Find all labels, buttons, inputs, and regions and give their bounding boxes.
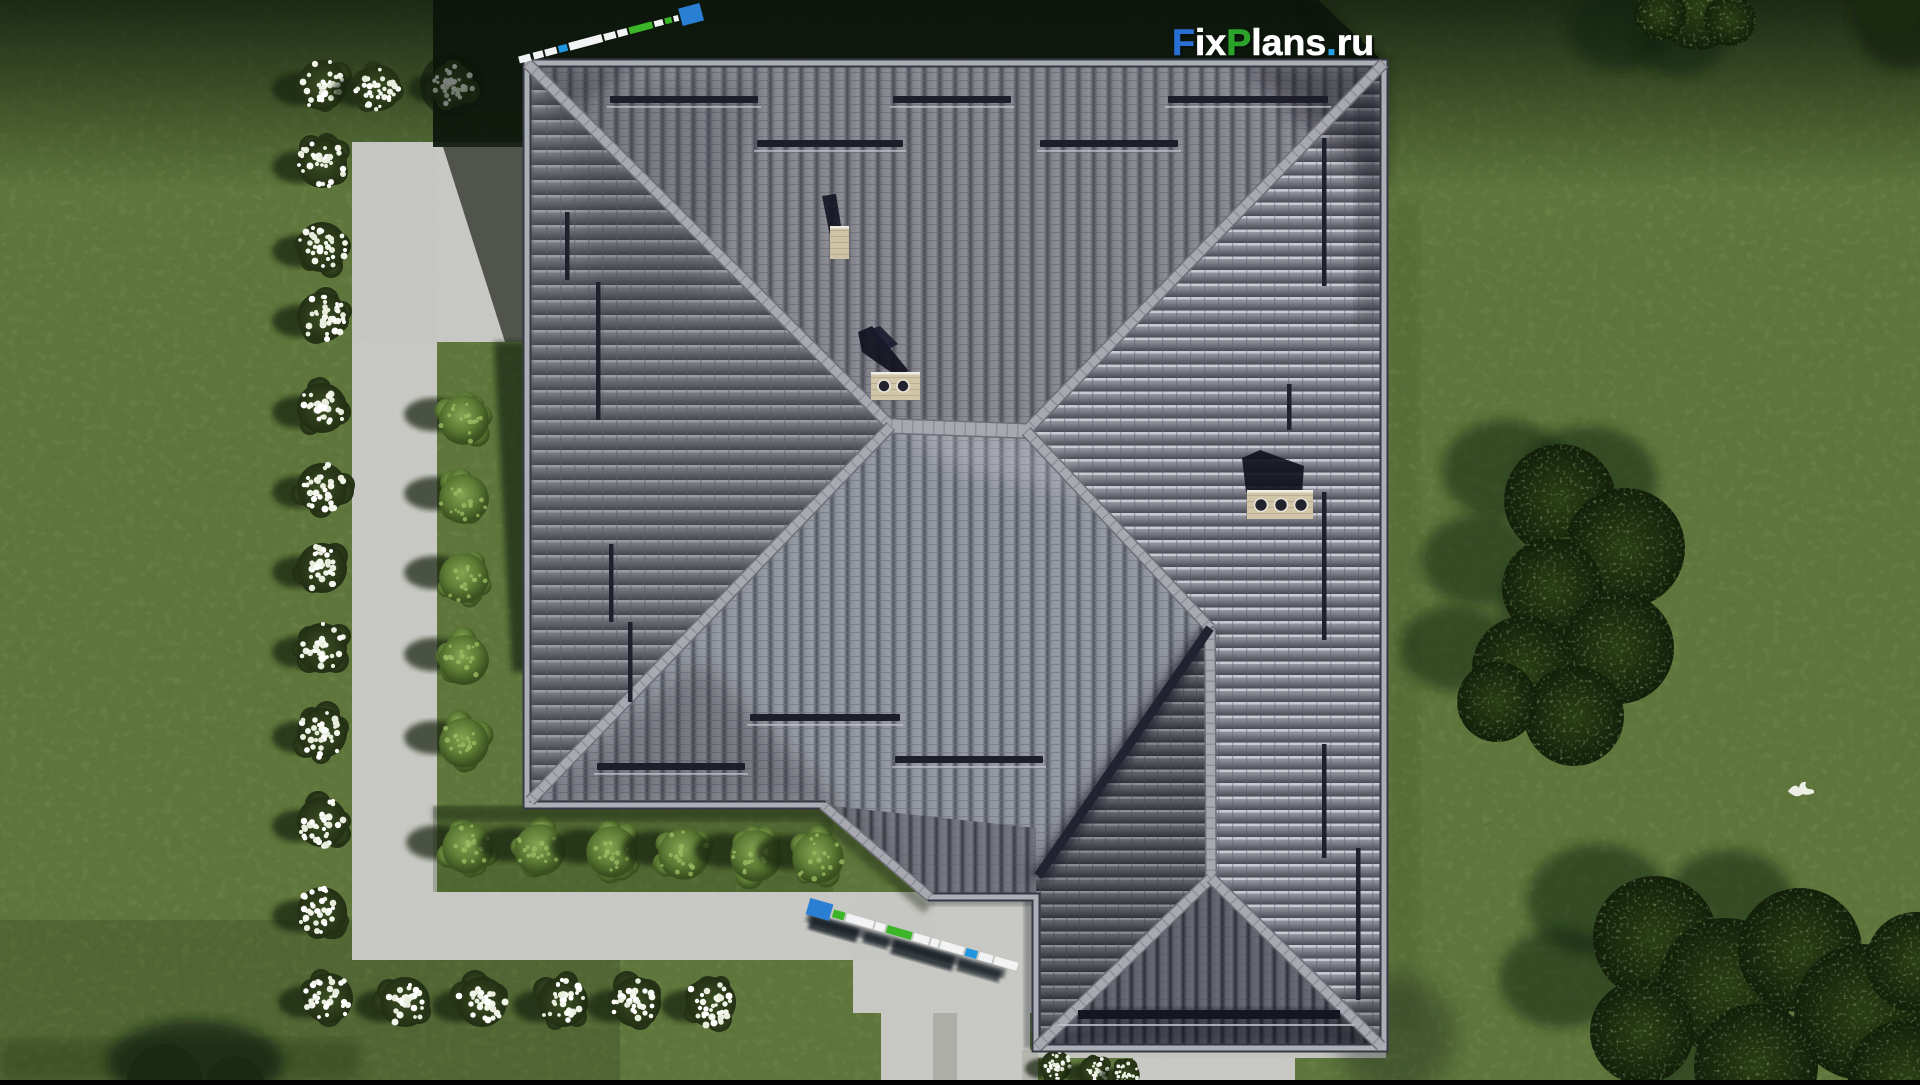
- svg-text:FixPlans.ru: FixPlans.ru: [1172, 21, 1374, 63]
